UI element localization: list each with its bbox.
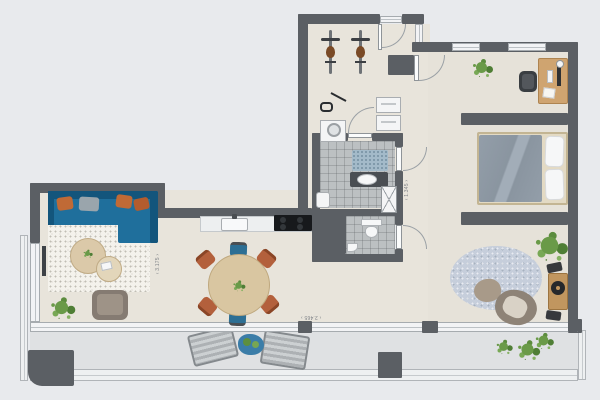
bedroom-partition-2 [461, 212, 568, 225]
bathroom-hall-door-leaf [348, 133, 372, 138]
kitchen-faucet [232, 214, 237, 219]
shower [381, 186, 397, 213]
dimension-terrace-horizontal: ‹ 2.465 › [292, 313, 330, 321]
west-balcony-door [42, 246, 46, 276]
bicycle-1-pedals [325, 61, 336, 63]
kitchen-sink [221, 218, 248, 231]
dimension-living-vertical: ‹ 3.175 › [154, 244, 162, 284]
bathroom-cabinet [316, 192, 330, 208]
bed-pillow-1 [544, 136, 564, 168]
entry-sidelight [415, 24, 423, 44]
coffee-table-plant [85, 251, 90, 256]
bedroom-large-plant [541, 237, 559, 255]
balcony-plate-2 [252, 341, 259, 348]
washing-machine-drum [327, 123, 341, 137]
sofa-back-right [150, 191, 158, 243]
balcony-pillar-mid [378, 352, 402, 378]
toilet-tank [361, 219, 382, 226]
hall-top-wall-a [298, 14, 380, 24]
east-wall [568, 42, 578, 332]
bedroom-plant [476, 62, 487, 73]
bed-duvet [479, 135, 542, 202]
balcony-plant-1 [499, 342, 508, 351]
bedroom-window-2 [508, 43, 546, 51]
balcony-pillar-left [28, 350, 74, 386]
desk-paper [542, 87, 555, 99]
balcony-plate-1 [243, 338, 251, 346]
living-plant [55, 301, 68, 314]
sofa-cushion-orange-1 [56, 196, 74, 211]
dimension-corridor-vertical: ‹ 1.345 › [403, 170, 411, 210]
service-shaft [318, 209, 346, 254]
balcony-side-table [238, 334, 264, 355]
utility-closet-2 [376, 115, 401, 131]
monitor [557, 66, 561, 86]
record-disc-center [556, 286, 560, 290]
toilet-bowl [365, 226, 378, 238]
bedroom-top-wall [412, 42, 578, 52]
sun-lounger-2 [260, 330, 311, 371]
balcony-plant-3 [539, 336, 549, 346]
entry-threshold [380, 16, 402, 23]
bath-mat [352, 150, 388, 171]
burner-4 [297, 224, 303, 230]
utility-closet-1-label [381, 103, 396, 105]
vacuum-body [320, 102, 333, 112]
speaker-2 [545, 310, 561, 321]
window-mullion-2 [422, 321, 438, 333]
desk-lamp [556, 60, 564, 68]
bicycle-2-handlebar [351, 38, 370, 41]
hall-stub-wall [388, 55, 414, 75]
bicycle-2-pedals [355, 61, 366, 63]
bathroom-right-wall-a [395, 133, 403, 147]
bedroom-window-1 [452, 43, 480, 51]
utility-closet-1 [376, 97, 401, 113]
burner-2 [297, 217, 303, 223]
armchair-seat [97, 294, 123, 315]
floor-plan: ‹ 3.175 › ‹ 1.345 › ‹ 2.465 › [0, 0, 600, 400]
burner-3 [280, 224, 286, 230]
balcony-railing [30, 369, 578, 381]
bicycle-1-handlebar [321, 38, 340, 41]
keyboard [547, 70, 553, 83]
sofa-armrest [48, 191, 54, 225]
balcony-railing-left [20, 235, 28, 381]
washbasin [357, 174, 377, 185]
bathroom-bottom-wall [312, 254, 403, 262]
bed-pillow-2 [544, 169, 564, 201]
hall-top-wall-b [402, 14, 424, 24]
window-mullion-1 [298, 321, 312, 333]
balcony-railing-right [578, 330, 586, 380]
bicycle-1-saddle [326, 46, 335, 58]
bedroom-partition-1 [461, 113, 568, 125]
sofa-cushion-gray [79, 196, 100, 211]
west-wall [30, 183, 40, 243]
bathroom-door-leaf [396, 147, 402, 171]
hall-left-wall [298, 14, 308, 218]
dining-centerpiece [235, 282, 242, 289]
office-chair-seat [522, 74, 534, 89]
balcony-plant-2 [521, 343, 533, 355]
west-window [30, 243, 40, 322]
bicycle-2-saddle [356, 46, 365, 58]
utility-closet-2-label [381, 121, 396, 123]
wc-door-leaf [396, 225, 402, 249]
sofa-cushion-orange-2 [115, 194, 133, 209]
burner-1 [280, 217, 286, 223]
